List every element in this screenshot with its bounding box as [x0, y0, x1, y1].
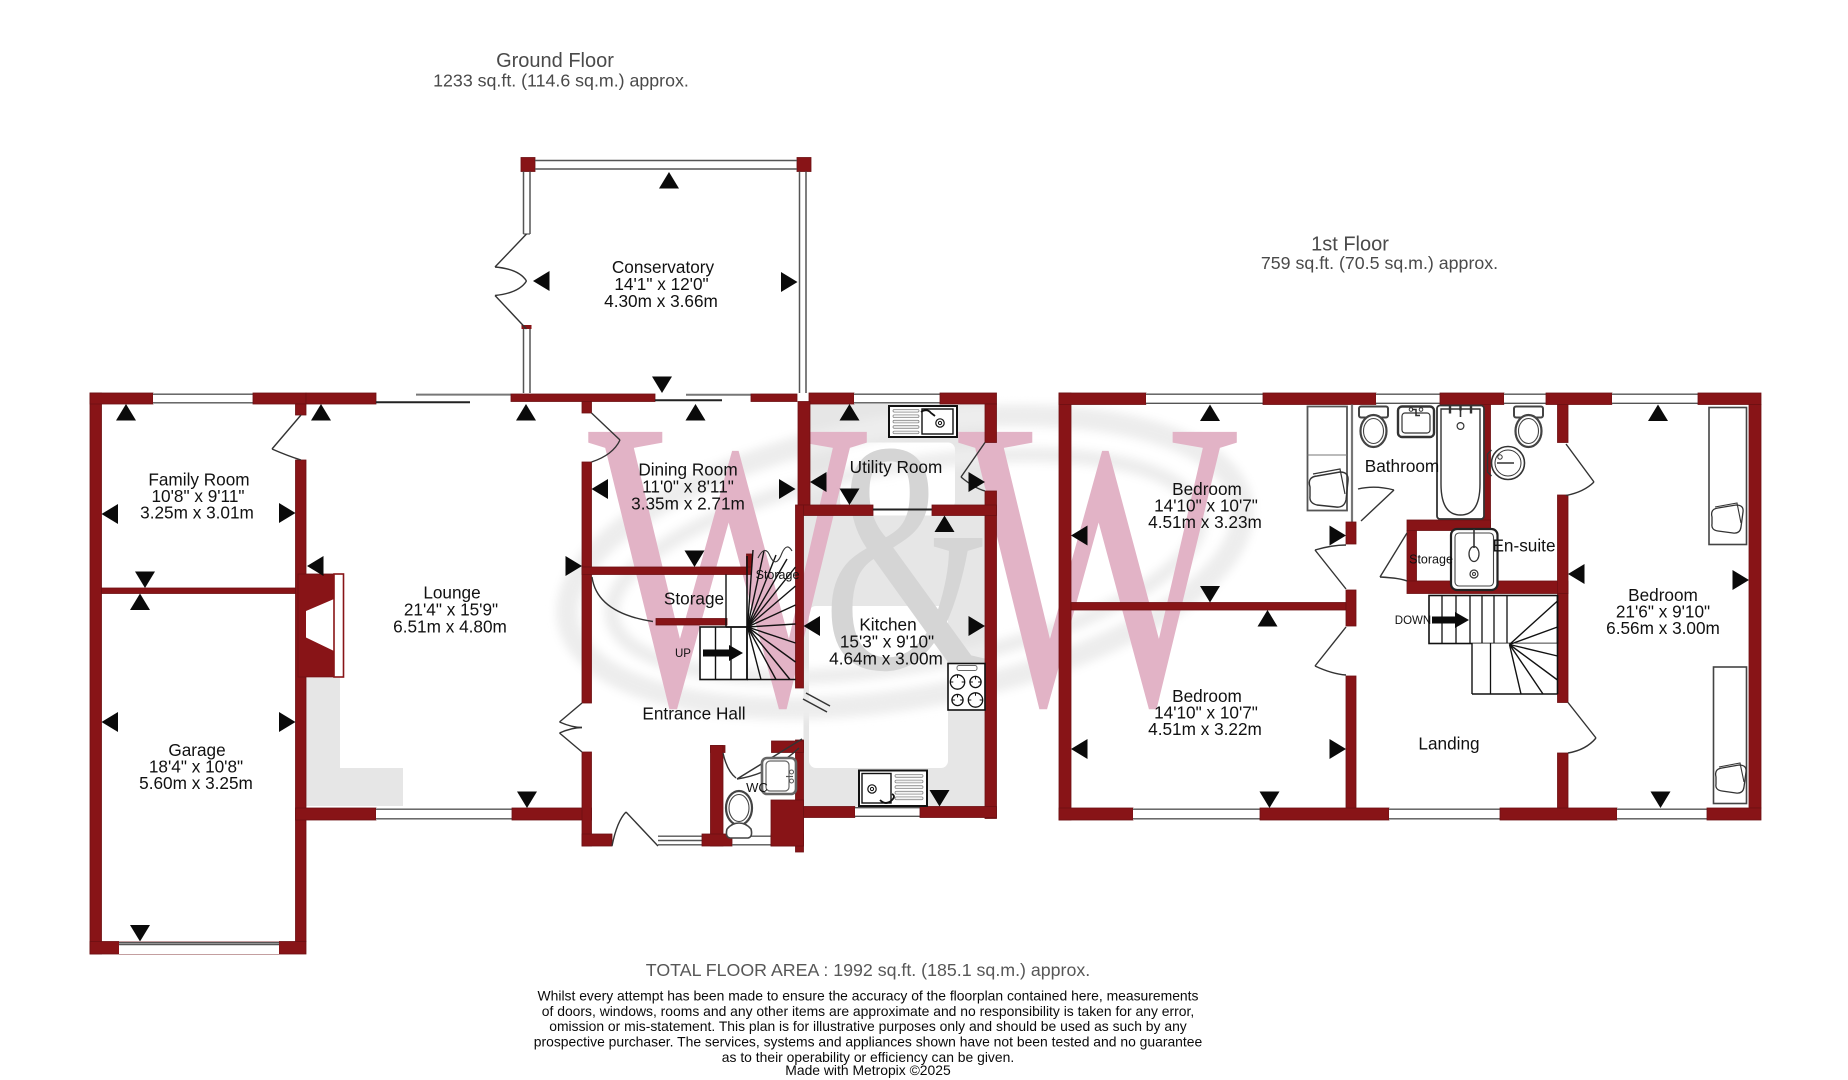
svg-text:of doors, windows, rooms and a: of doors, windows, rooms and any other i… [542, 1003, 1194, 1019]
svg-text:5.60m x 3.25m: 5.60m x 3.25m [139, 773, 253, 793]
svg-text:WC: WC [746, 780, 768, 795]
svg-text:DOWN: DOWN [1395, 615, 1431, 627]
svg-text:3.35m x 2.71m: 3.35m x 2.71m [631, 494, 745, 514]
svg-text:4.51m x 3.22m: 4.51m x 3.22m [1148, 719, 1262, 739]
svg-text:UP: UP [675, 648, 691, 660]
svg-text:1233 sq.ft. (114.6 sq.m.) appr: 1233 sq.ft. (114.6 sq.m.) approx. [433, 71, 689, 91]
svg-text:4.30m x 3.66m: 4.30m x 3.66m [604, 291, 718, 311]
svg-text:Bathroom: Bathroom [1365, 456, 1440, 476]
svg-text:Whilst every attempt has been: Whilst every attempt has been made to en… [538, 988, 1199, 1004]
svg-text:Made with Metropix ©2025: Made with Metropix ©2025 [785, 1062, 951, 1078]
svg-text:3.25m x 3.01m: 3.25m x 3.01m [140, 503, 254, 523]
svg-text:omission or mis-statement. Thi: omission or mis-statement. This plan is … [549, 1018, 1187, 1034]
svg-text:759 sq.ft. (70.5 sq.m.) approx: 759 sq.ft. (70.5 sq.m.) approx. [1261, 253, 1498, 273]
svg-text:En-suite: En-suite [1492, 536, 1555, 556]
svg-text:Ground Floor: Ground Floor [496, 50, 614, 72]
svg-text:TOTAL FLOOR AREA : 1992 sq.ft.: TOTAL FLOOR AREA : 1992 sq.ft. (185.1 sq… [646, 960, 1090, 980]
svg-text:Storage: Storage [1409, 553, 1453, 567]
svg-text:Utility Room: Utility Room [850, 457, 943, 477]
svg-text:Landing: Landing [1418, 734, 1479, 754]
svg-text:Entrance Hall: Entrance Hall [642, 704, 745, 724]
svg-text:4.51m x 3.23m: 4.51m x 3.23m [1148, 512, 1262, 532]
svg-text:Storage: Storage [664, 589, 724, 609]
svg-text:4.64m x 3.00m: 4.64m x 3.00m [829, 649, 943, 669]
svg-text:6.56m x 3.00m: 6.56m x 3.00m [1606, 618, 1720, 638]
svg-text:prospective purchaser. The ser: prospective purchaser. The services, sys… [534, 1034, 1203, 1050]
svg-text:6.51m x 4.80m: 6.51m x 4.80m [393, 617, 507, 637]
svg-text:Storage: Storage [756, 568, 800, 582]
